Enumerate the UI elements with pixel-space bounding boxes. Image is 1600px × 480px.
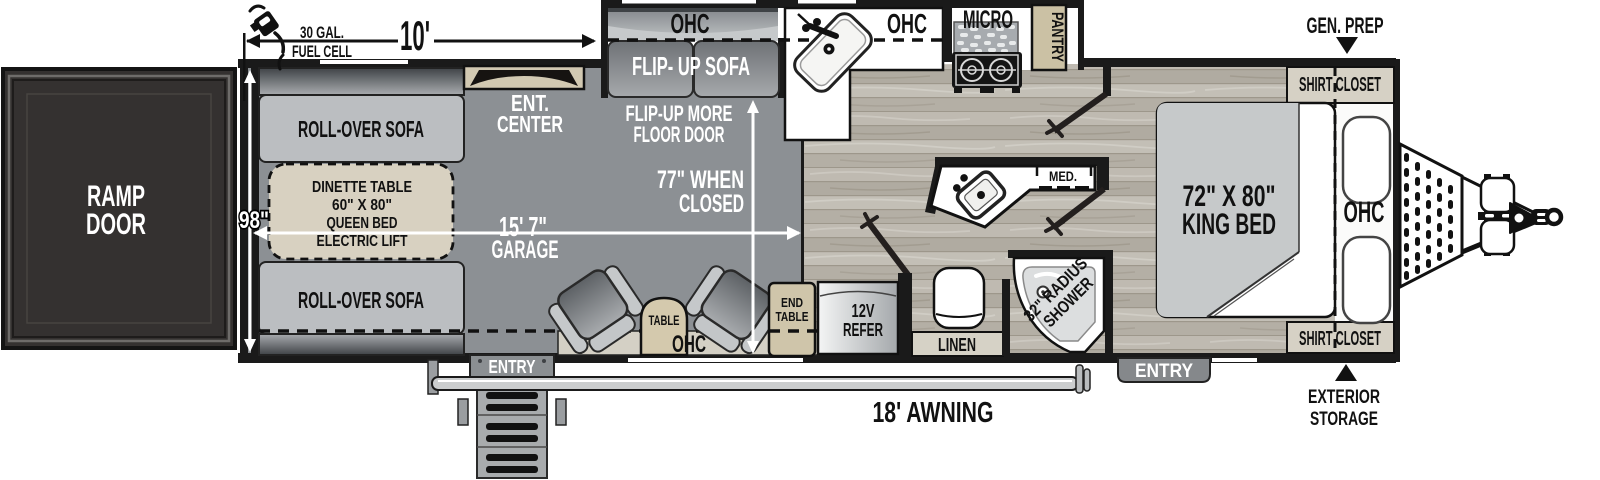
svg-text:SHIRT CLOSET: SHIRT CLOSET xyxy=(1299,328,1381,350)
svg-text:ROLL-OVER SOFA: ROLL-OVER SOFA xyxy=(298,287,424,313)
svg-text:60" X 80": 60" X 80" xyxy=(332,197,392,214)
svg-text:CENTER: CENTER xyxy=(497,111,563,137)
svg-text:12V: 12V xyxy=(852,301,875,321)
svg-text:KING BED: KING BED xyxy=(1182,208,1276,241)
svg-text:18' AWNING: 18' AWNING xyxy=(873,397,994,429)
svg-text:GEN. PREP: GEN. PREP xyxy=(1307,13,1384,38)
svg-text:DOOR: DOOR xyxy=(86,208,146,241)
svg-text:STORAGE: STORAGE xyxy=(1310,409,1378,430)
svg-text:END: END xyxy=(781,296,803,310)
svg-text:FLOOR DOOR: FLOOR DOOR xyxy=(634,122,725,147)
svg-text:REFER: REFER xyxy=(843,320,883,340)
svg-text:DINETTE TABLE: DINETTE TABLE xyxy=(312,179,412,196)
svg-text:TABLE: TABLE xyxy=(776,310,809,324)
svg-text:FUEL CELL: FUEL CELL xyxy=(292,42,352,61)
svg-text:OHC: OHC xyxy=(1344,196,1385,229)
svg-text:10': 10' xyxy=(400,12,430,59)
svg-text:OHC: OHC xyxy=(672,331,706,358)
svg-text:MICRO: MICRO xyxy=(963,6,1013,34)
svg-text:EXTERIOR: EXTERIOR xyxy=(1308,387,1380,408)
svg-text:QUEEN BED: QUEEN BED xyxy=(327,215,398,232)
svg-text:OHC: OHC xyxy=(671,8,710,39)
svg-text:PANTRY: PANTRY xyxy=(1048,12,1067,62)
svg-text:GARAGE: GARAGE xyxy=(492,236,559,264)
svg-text:MED.: MED. xyxy=(1049,168,1077,184)
svg-text:TABLE: TABLE xyxy=(649,312,680,328)
svg-text:SHIRT CLOSET: SHIRT CLOSET xyxy=(1299,74,1381,96)
svg-text:CLOSED: CLOSED xyxy=(679,190,744,218)
svg-text:OHC: OHC xyxy=(887,8,927,39)
svg-text:LINEN: LINEN xyxy=(938,335,976,355)
svg-text:ENTRY: ENTRY xyxy=(1135,361,1193,382)
svg-text:ROLL-OVER SOFA: ROLL-OVER SOFA xyxy=(298,116,424,142)
svg-text:FLIP- UP SOFA: FLIP- UP SOFA xyxy=(632,51,750,81)
svg-text:ENTRY: ENTRY xyxy=(489,357,536,377)
svg-text:ELECTRIC LIFT: ELECTRIC LIFT xyxy=(317,233,408,250)
svg-text:30 GAL.: 30 GAL. xyxy=(300,23,344,42)
